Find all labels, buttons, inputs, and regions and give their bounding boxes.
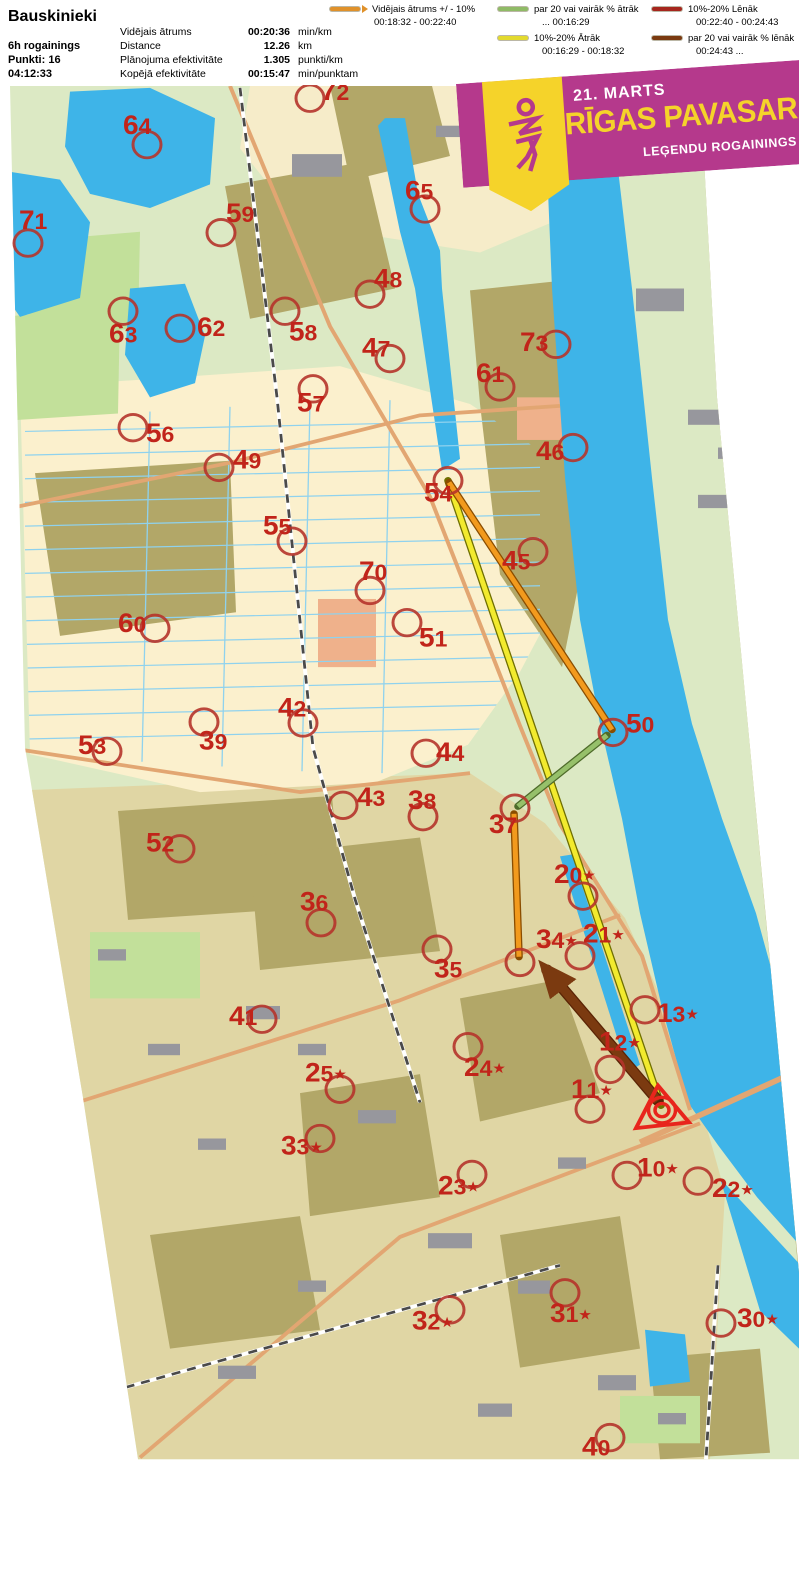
legend-item: Vidējais ātrums +/ - 10% [330,4,475,17]
legend-label: par 20 vai vairāk % lēnāk [688,33,794,44]
legend-label: 10%-20% Lēnāk [688,4,758,15]
control-label-36: 36 [300,886,328,916]
control-label-62: 62 [197,312,225,342]
control-label-40: 40 [582,1431,610,1461]
control-label-53: 53 [78,730,106,760]
control-label-71: 71 [19,205,47,235]
legend-item: 10%-20% Lēnāk [652,4,794,17]
control-label-48: 48 [374,263,402,293]
control-label-43: 43 [357,782,385,812]
control-label-44: 44 [436,737,465,767]
legend-line-swatch [498,7,528,11]
legend-range: 00:16:29 - 00:18:32 [542,46,639,58]
control-label-45: 45 [502,545,530,575]
legend-range: 00:24:43 ... [696,46,794,58]
page: { "header": { "team": "Bauskinieki", "cl… [0,0,799,1590]
control-label-41: 41 [229,1001,257,1031]
control-label-64: 64 [123,110,152,140]
control-label-57: 57 [297,387,325,417]
control-label-63: 63 [109,318,137,348]
legend-arrow-icon [362,5,368,13]
control-label-51: 51 [419,622,447,652]
legend-line-swatch [652,7,682,11]
control-label-50: 50 [626,708,654,738]
legend-label: par 20 vai vairāk % ātrāk [534,4,639,15]
legend-line-swatch [498,36,528,40]
control-label-52: 52 [146,827,174,857]
legend-item: 10%-20% Ātrāk [498,33,639,46]
stat-unit: km [298,40,312,52]
legend-label: 10%-20% Ātrāk [534,33,600,44]
control-label-46: 46 [536,436,564,466]
control-label-42: 42 [278,692,306,722]
legend-range: ... 00:16:29 [542,17,639,29]
legend-item: par 20 vai vairāk % lēnāk [652,33,794,46]
race-class: 6h rogainings [8,40,80,52]
stat-label: Distance [120,40,161,52]
control-label-54: 54 [424,477,453,507]
elapsed-time: 04:12:33 [8,68,52,80]
control-label-72: 72 [321,85,349,106]
control-label-47: 47 [362,332,390,362]
stat-value: 00:20:36 [205,26,290,38]
control-label-73: 73 [520,327,548,357]
control-label-59: 59 [226,198,254,228]
control-label-65: 65 [405,175,433,205]
control-label-49: 49 [233,444,261,474]
control-label-35: 35 [434,953,462,983]
control-label-58: 58 [289,316,317,346]
control-label-38: 38 [408,785,436,815]
control-label-70: 70 [359,556,387,586]
legend-label: Vidējais ātrums +/ - 10% [372,4,475,15]
legend-column: Vidējais ātrums +/ - 10% 00:18:32 - 00:2… [330,0,475,85]
control-label-39: 39 [199,725,227,755]
legend-range: 00:18:32 - 00:22:40 [374,17,475,29]
stat-value: 00:15:47 [205,68,290,80]
stat-unit: min/km [298,26,332,38]
rogaining-map: 7264657159486362584773615756464954554570… [0,85,799,1590]
control-label-37: 37 [489,808,517,838]
stat-value: 12.26 [205,40,290,52]
control-label-56: 56 [146,418,174,448]
points-total: Punkti: 16 [8,54,61,66]
stat-label: Kopējā efektivitāte [120,68,206,80]
control-label-60: 60 [118,608,146,638]
legend-line-swatch [330,7,360,11]
control-label-61: 61 [476,358,504,388]
map-canvas: 7264657159486362584773615756464954554570… [0,85,799,1590]
stat-value: 1.305 [205,54,290,66]
banner-pennant [482,76,573,217]
control-label-55: 55 [263,510,291,540]
legend-line-swatch [652,36,682,40]
legend-range: 00:22:40 - 00:24:43 [696,17,794,29]
team-name: Bauskinieki [8,8,97,26]
stat-label: Vidējais ātrums [120,26,192,38]
legend-item: par 20 vai vairāk % ātrāk [498,4,639,17]
